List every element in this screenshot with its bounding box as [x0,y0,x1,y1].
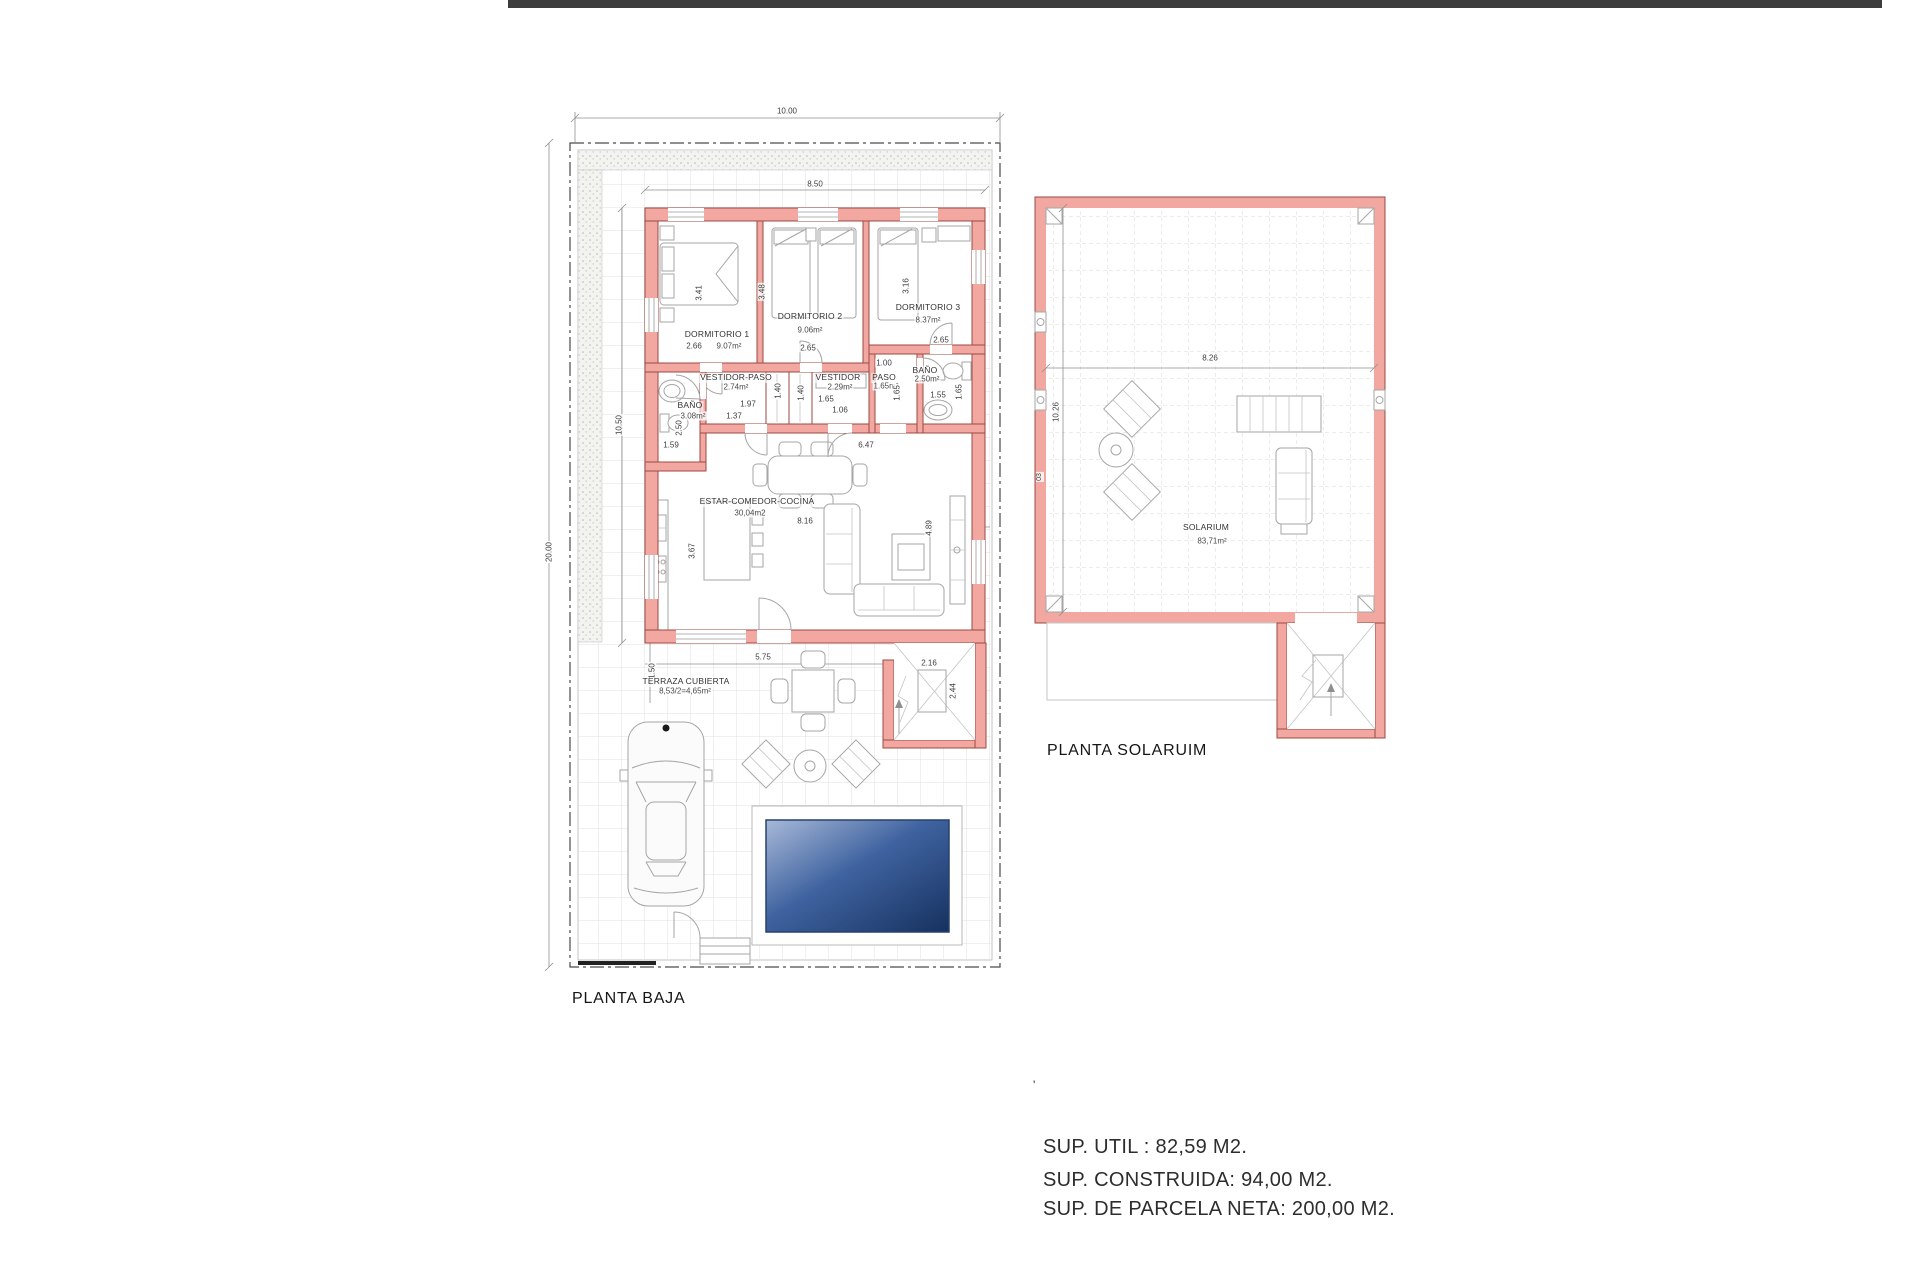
summary-sup-util: SUP. UTIL : 82,59 M2. [1043,1136,1247,1159]
dim-vestidor-paso-w1: 1.97 [739,399,757,408]
car [620,722,712,906]
marker-solarium: 03 [1036,472,1044,482]
room-label-dormitorio1: DORMITORIO 1 [684,330,751,340]
area-solarium: 83,71m² [1196,536,1227,545]
dim-dormitorio2-w: 2.65 [799,343,817,352]
dim-banyo2-h: 1.65 [954,383,963,401]
room-label-dormitorio3: DORMITORIO 3 [895,303,962,313]
stray-tick: ' [1033,1078,1035,1092]
dim-banyo1-h: 2.50 [674,419,683,437]
dim-closet2-h: 1.40 [796,384,805,402]
title-planta-solarium: PLANTA SOLARUIM [1047,742,1207,760]
dim-dormitorio2-h: 3.48 [757,283,766,301]
dim-solarium-w: 8.26 [1201,353,1219,362]
dim-paso-h: 1.65 [892,384,901,402]
dim-estar-w: 8.16 [796,516,814,525]
dim-stairs-h: 2.44 [948,682,957,700]
room-label-terraza: TERRAZA CUBIERTA [642,677,731,687]
dim-plot-width: 10.00 [776,106,798,115]
room-label-estar: ESTAR-COMEDOR-COCINA [699,497,816,507]
dim-vestidor-w1: 1.65 [817,394,835,403]
dim-stairs-w: 2.16 [920,658,938,667]
dim-building-depth: 10.50 [614,414,623,436]
area-estar: 30,04m2 [733,508,766,517]
room-label-vestidor: VESTIDOR [814,373,861,383]
dim-dormitorio3-w: 2.65 [932,335,950,344]
dim-estar-hright: 4.89 [924,519,933,537]
area-vestidor-paso: 2.74m² [723,382,750,391]
solarium-plan [1035,197,1385,738]
title-planta-baja: PLANTA BAJA [572,990,685,1008]
dim-plot-depth: 20.00 [544,541,553,563]
room-label-dormitorio2: DORMITORIO 2 [777,312,844,322]
dim-banyo2-w: 1.55 [929,390,947,399]
area-banyo2: 2.50m² [914,374,941,383]
room-label-banyo1: BAÑO [677,401,704,411]
dim-vestidor-paso-w2: 1.37 [725,411,743,420]
dim-banyo1-w: 1.59 [662,440,680,449]
plan-sheet: .w{fill:#F2A8A1;stroke:#9B4A42;stroke-wi… [0,0,1920,1280]
area-dormitorio1: 9.07m² [716,341,743,350]
floor-plan-drawing: .w{fill:#F2A8A1;stroke:#9B4A42;stroke-wi… [0,0,1920,1280]
summary-sup-construida: SUP. CONSTRUIDA: 94,00 M2. [1043,1169,1333,1192]
dim-terraza-w: 5.75 [754,652,772,661]
dim-closet1-h: 1.40 [773,382,782,400]
dim-building-width: 8.50 [806,179,824,188]
room-label-solarium: SOLARIUM [1182,523,1230,533]
room-label-vestidor-paso: VESTIDOR-PASO [699,373,773,383]
dim-dormitorio1-h: 3.41 [694,284,703,302]
dim-estar-hleft: 3.67 [687,542,696,560]
pool [752,806,962,945]
dim-solarium-h: 10.26 [1051,401,1060,423]
area-dormitorio3: 8.37m² [915,315,942,324]
area-dormitorio2: 9.06m² [797,325,824,334]
summary-sup-parcela: SUP. DE PARCELA NETA: 200,00 M2. [1043,1198,1395,1221]
area-terraza: 8,53/2=4,65m² [658,686,712,695]
dim-estar-wtop: 6.47 [857,440,875,449]
dim-paso-w: 1.00 [875,358,893,367]
dim-dormitorio1-w: 2.66 [685,341,703,350]
dim-dormitorio3-h: 3.16 [901,277,910,295]
dim-vestidor-w2: 1.06 [831,405,849,414]
area-vestidor: 2.29m² [827,382,854,391]
